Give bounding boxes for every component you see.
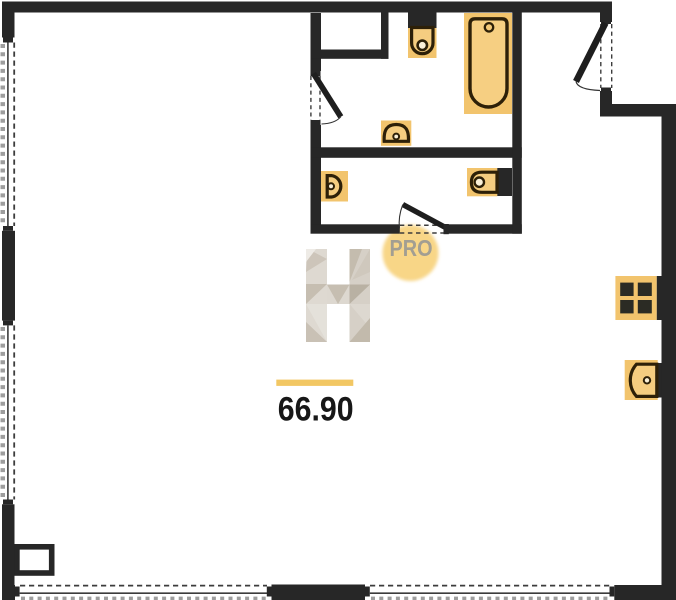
- svg-text:66.90: 66.90: [278, 390, 354, 428]
- svg-text:PRO: PRO: [390, 235, 433, 261]
